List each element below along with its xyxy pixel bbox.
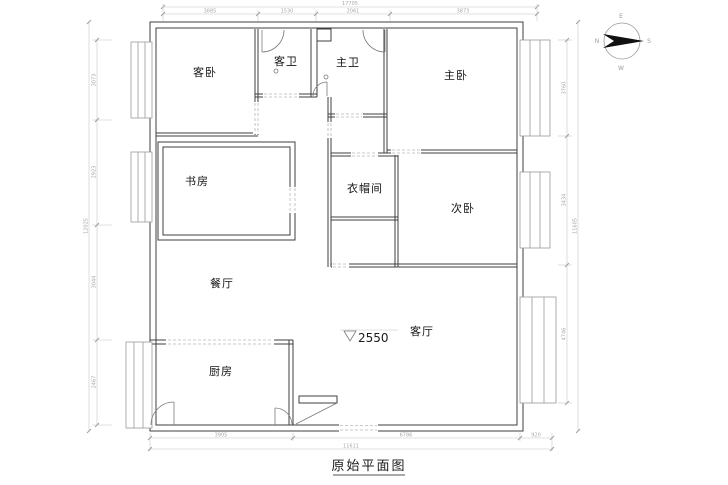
label-study: 书房 (185, 175, 209, 188)
window-kitchen (126, 342, 152, 428)
page-title: 原始平面图 (331, 459, 406, 474)
label-dining: 餐厅 (210, 276, 234, 290)
doors (151, 30, 385, 425)
dim-left-seg-3: 2467 (92, 376, 98, 389)
fixture-circle-master-bath (324, 75, 328, 79)
door-guest-bath (262, 30, 284, 52)
dimensions-right: 3760 3434 4746 11605 (558, 20, 580, 433)
dim-bottom-overall: 11611 (343, 444, 359, 450)
dim-right-seg-1: 3434 (562, 194, 568, 207)
entry-door (296, 396, 337, 424)
study-room-walls (158, 142, 295, 240)
dim-bottom-seg-1: 6786 (400, 433, 413, 439)
window-second-bedroom (520, 172, 550, 248)
compass-top-letter: E (619, 13, 623, 20)
floor-plan-canvas: 客卧 客卫 主卫 主卧 书房 衣帽间 次卧 餐厅 客厅 厨房 2550 E N … (0, 0, 728, 485)
dimensions-top: 17705 3885 1530 2061 3873 (161, 1, 539, 21)
label-master-bedroom: 主卧 (444, 69, 468, 82)
dim-left-seg-1: 2923 (92, 166, 98, 179)
room-labels: 客卧 客卫 主卫 主卧 书房 衣帽间 次卧 餐厅 客厅 厨房 (185, 54, 475, 378)
dim-left-overall: 12025 (84, 218, 90, 234)
label-guest-bath: 客卫 (274, 54, 298, 68)
windows (126, 40, 556, 428)
dim-left-seg-0: 3073 (92, 74, 98, 87)
interior-walls (150, 29, 517, 425)
label-kitchen: 厨房 (209, 365, 233, 378)
dim-left-seg-2: 3044 (92, 276, 98, 289)
window-study (131, 152, 152, 222)
dim-right-overall: 11605 (573, 218, 579, 234)
dim-bottom-seg-2: 920 (531, 433, 541, 439)
dim-top-seg-1: 1530 (281, 9, 294, 15)
dim-top-seg-2: 2061 (347, 9, 360, 15)
label-master-bath: 主卫 (336, 56, 360, 69)
dimensions-bottom: 3905 6786 920 11611 (148, 433, 554, 452)
elevation-triangle-icon (344, 331, 356, 341)
dim-top-overall: 17705 (342, 1, 358, 7)
elevation-value: 2550 (358, 331, 389, 345)
dimensions-left: 3073 2923 3044 2467 12025 (84, 20, 113, 433)
dim-right-seg-2: 4746 (562, 328, 568, 341)
label-cloakroom: 衣帽间 (347, 181, 383, 195)
compass-bottom-letter: W (618, 65, 624, 72)
window-guest-bedroom (131, 42, 152, 118)
label-second-bedroom: 次卧 (451, 201, 475, 215)
dim-top-seg-0: 3885 (204, 9, 217, 15)
outer-walls (150, 22, 523, 431)
door-master-bath-top (363, 30, 385, 52)
compass: E N S W (595, 13, 651, 72)
north-arrow-icon (603, 34, 644, 48)
fixture-circle-guest-bath (274, 69, 278, 73)
elevation-marker: 2550 (340, 330, 398, 345)
compass-left-letter: N (595, 38, 600, 45)
drawing-title: 原始平面图 (331, 459, 406, 475)
window-master-bedroom (520, 40, 550, 136)
label-living: 客厅 (410, 324, 434, 338)
dim-right-seg-0: 3760 (562, 82, 568, 95)
dim-top-seg-3: 3873 (457, 9, 470, 15)
compass-right-letter: S (647, 38, 651, 45)
dim-bottom-seg-0: 3905 (215, 433, 228, 439)
window-living-room (520, 297, 556, 403)
label-guest-bedroom: 客卧 (193, 65, 217, 79)
door-kitchen-left (151, 402, 174, 425)
